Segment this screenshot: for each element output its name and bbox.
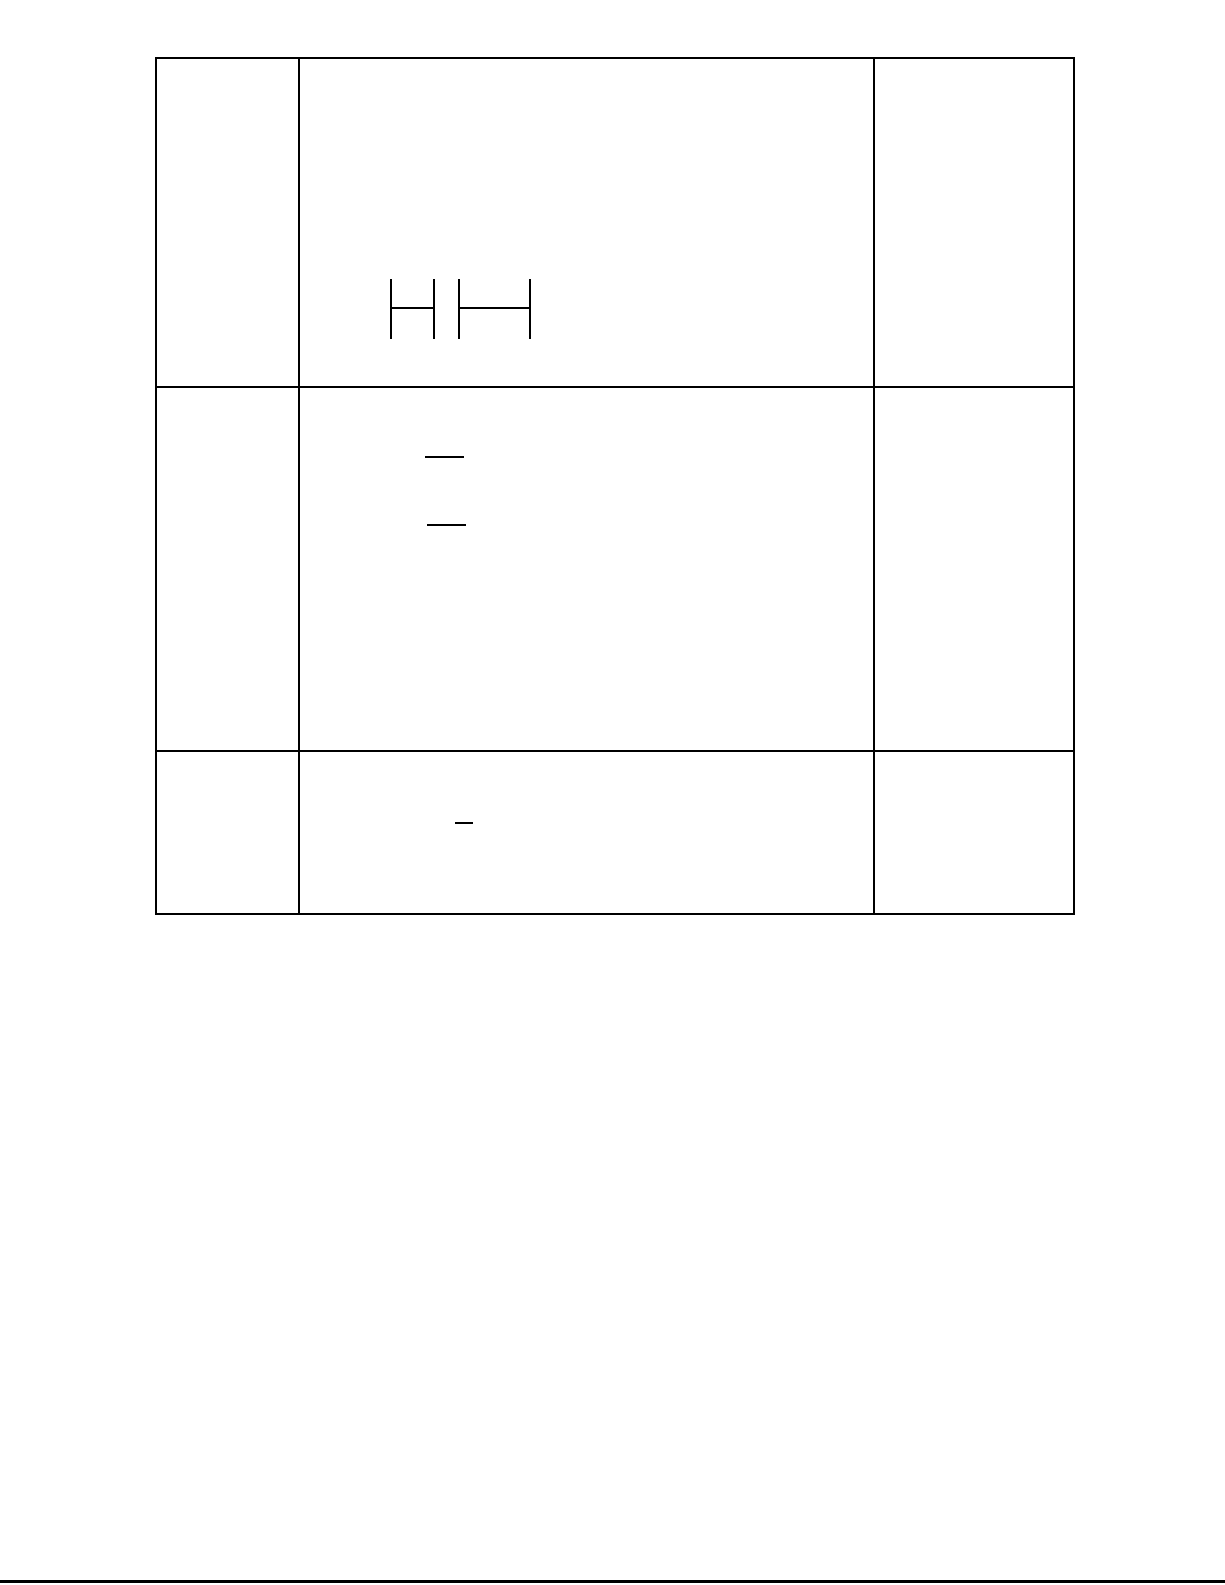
table-cell-r2c3: [875, 388, 1073, 752]
table-cell-r1c3: [875, 59, 1073, 388]
table-cell-r1c2: [300, 59, 875, 388]
question-table: [155, 57, 1075, 915]
table-cell-r2c2: [300, 388, 875, 752]
table-cell-r3c1: [157, 752, 300, 913]
table-cell-r3c3: [875, 752, 1073, 913]
document-page: [0, 0, 1225, 1585]
table-cell-r3c2: [300, 752, 875, 913]
table-cell-r1c1: [157, 59, 300, 388]
table-cell-r2c1: [157, 388, 300, 752]
page-bottom-rule-stroke: [0, 1580, 1225, 1583]
